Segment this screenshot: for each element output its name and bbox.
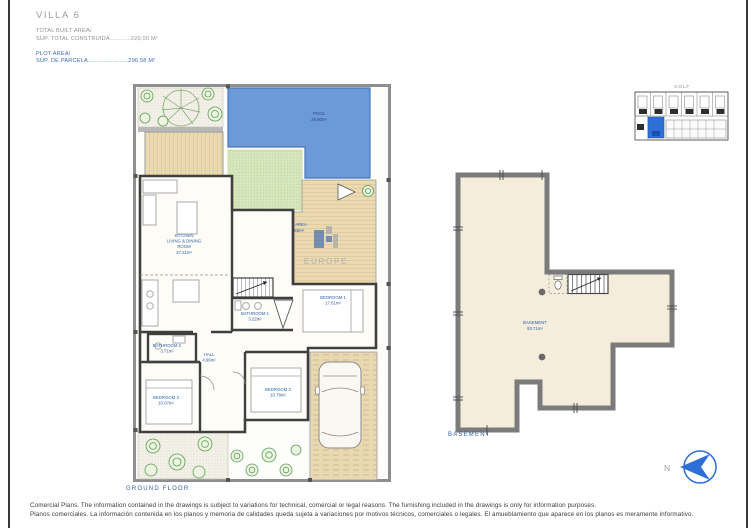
villa-title: VILLA 6 [36, 10, 158, 21]
basement-room-label: BASEMENT [523, 320, 547, 325]
hall-label: HALL [204, 352, 215, 357]
hall-area: 4.96m² [202, 358, 216, 363]
bedroom1-label: BEDROOM 1 [320, 295, 346, 300]
compass: N [660, 444, 722, 490]
bathroom2-area: 3.71m² [160, 349, 174, 354]
sheet-header: VILLA 6 TOTAL BUILT AREA/ SUP. TOTAL CON… [36, 10, 158, 66]
plot-area-value: SUP. DE PARCELA.......................29… [36, 58, 158, 66]
kitchen-label-1: KITCHEN [175, 233, 194, 238]
built-area-value: SUP. TOTAL CONSTRUIDA............220,00 … [36, 36, 158, 44]
basement-footprint [458, 175, 672, 430]
lawn [228, 150, 302, 210]
built-area-block: TOTAL BUILT AREA/ SUP. TOTAL CONSTRUIDA.… [36, 28, 158, 44]
left-trim-line [8, 0, 10, 528]
key-map: GOLF [622, 80, 744, 148]
built-area-label: TOTAL BUILT AREA/ [36, 28, 158, 36]
column [539, 354, 546, 361]
ground-floor-plan: POOL 29.80m² PLOT AREA 296.58m² [133, 84, 391, 484]
sofa-icon [143, 195, 156, 225]
plot-area-block: PLOT AREA/ SUP. DE PARCELA..............… [36, 51, 158, 67]
disclaimer: Comercial Plans. The information contain… [30, 502, 746, 520]
north-arrow-icon [680, 454, 710, 480]
key-map-title: GOLF [674, 84, 690, 89]
bedroom2-label: BEDROOM 2 [265, 387, 291, 392]
bedroom3-area: 10.07m² [158, 401, 174, 406]
column [539, 289, 546, 296]
watermark: EUROPE [296, 226, 356, 266]
pool-label: POOL [313, 111, 326, 116]
sofa-icon [143, 180, 177, 193]
compass-north-label: N [664, 463, 670, 473]
bedroom2-area: 10.78m² [270, 393, 286, 398]
disclaimer-line-en: Comercial Plans. The information contain… [30, 502, 746, 511]
basement-caption: BASEMENT [448, 432, 491, 438]
highlighted-villa-plot [648, 117, 664, 138]
kitchen-label-2: LIVING & DINING [167, 239, 202, 244]
disclaimer-line-es: Planos comerciales. La información conte… [30, 511, 746, 520]
kitchen-area: 37.21m² [176, 250, 192, 255]
plan-sheet: VILLA 6 TOTAL BUILT AREA/ SUP. TOTAL CON… [0, 0, 756, 528]
basement-plan: BASEMENT 93.71m² [450, 168, 680, 444]
bedroom3-label: BEDROOM 3 [153, 395, 179, 400]
car-icon [316, 362, 365, 448]
toilet-icon [555, 281, 561, 289]
watermark-logo-icon [313, 226, 339, 250]
garden-bottom-left [138, 430, 228, 479]
stairs [233, 278, 273, 297]
ground-floor-caption: GROUND FLOOR [126, 486, 189, 492]
terrace-deck [145, 132, 223, 176]
garden-top-left [138, 88, 223, 132]
right-trim-line [746, 0, 748, 528]
plant-icon [363, 186, 374, 197]
bathroom1-label: BATHROOM 1 [241, 311, 270, 316]
kitchen-island-icon [177, 202, 197, 234]
basement-room-area: 93.71m² [527, 326, 543, 331]
kitchen-label-3: ROOM [177, 244, 191, 249]
bedroom1-area: 17.61m² [325, 301, 341, 306]
plot-area-label: PLOT AREA/ [36, 51, 158, 59]
pool-area-label: 29.80m² [311, 117, 327, 122]
table-icon [173, 280, 199, 302]
bathroom1-area: 3.22m² [248, 317, 262, 322]
bathroom2-label: BATHROOM 2 [153, 343, 182, 348]
watermark-text: EUROPE [296, 257, 356, 266]
